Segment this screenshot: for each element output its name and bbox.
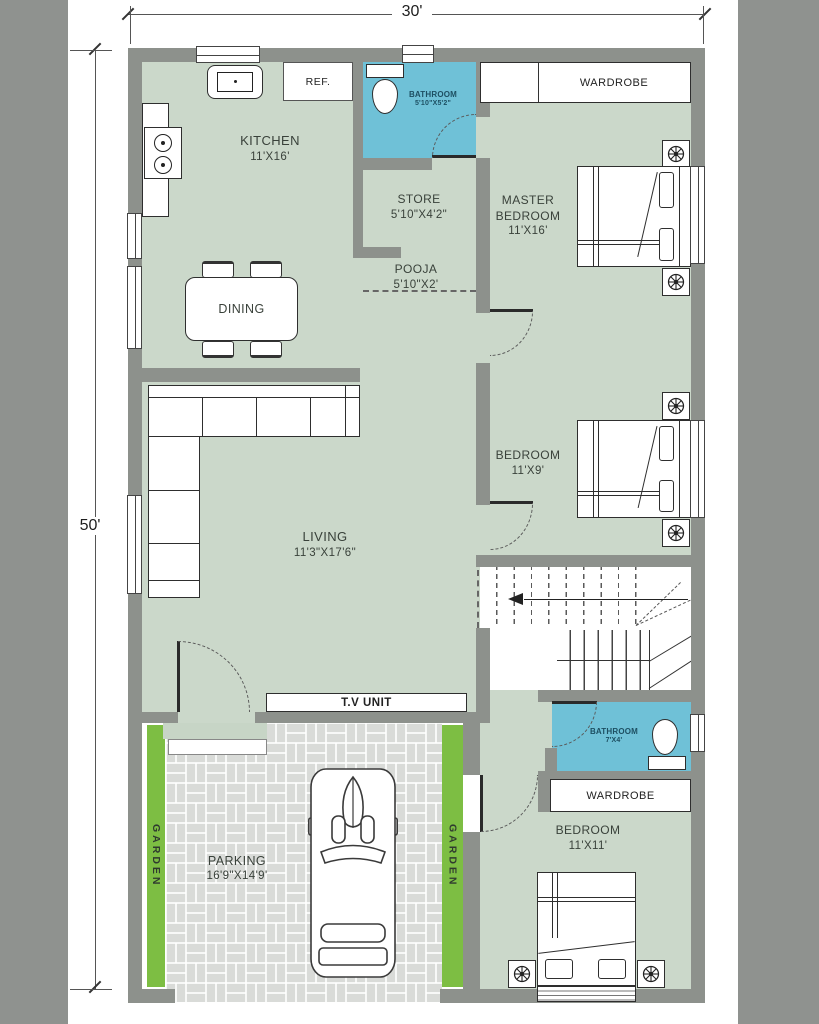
bed-bottom	[537, 872, 636, 986]
wardrobe-bottom-label: WARDROBE	[586, 790, 654, 802]
nightstand	[508, 960, 536, 988]
tv-unit-label: T.V UNIT	[341, 697, 392, 709]
wall	[463, 723, 480, 775]
bed-mid	[577, 420, 691, 518]
window	[690, 714, 705, 752]
ceiling-fan-icon	[666, 396, 686, 416]
room-label-bedroom-bottom: BEDROOM 11'X11'	[542, 823, 634, 854]
window	[127, 213, 142, 259]
entry-porch	[163, 723, 267, 739]
room-label-store: STORE 5'10"X4'2"	[360, 192, 478, 223]
wall	[476, 628, 490, 723]
chair-icon	[250, 341, 282, 358]
entry-step	[168, 739, 267, 755]
nightstand	[637, 960, 665, 988]
toilet-tank-icon	[648, 756, 686, 770]
window	[127, 495, 142, 594]
window	[690, 166, 705, 264]
wardrobe-top-label: WARDROBE	[538, 63, 690, 102]
ceiling-fan-icon	[641, 964, 661, 984]
ceiling-fan-icon	[666, 272, 686, 292]
extension-line	[703, 6, 704, 44]
room-label-kitchen: KITCHEN 11'X16'	[208, 133, 332, 165]
stove-icon	[144, 127, 182, 179]
wall	[476, 555, 705, 567]
chair-icon	[202, 341, 234, 358]
toilet-tank-icon	[366, 64, 404, 78]
room-label-parking: PARKING 16'9"X14'9'	[178, 853, 296, 884]
wall	[463, 832, 480, 989]
wall	[545, 748, 557, 773]
room-label-bathroom-top: BATHROOM 5'10"X5'2"	[389, 90, 477, 109]
car-icon	[308, 766, 398, 980]
room-label-master-bedroom: MASTER BEDROOM 11'X16'	[486, 193, 570, 239]
left-gray-band	[0, 0, 68, 1024]
room-label-bedroom-mid: BEDROOM 11'X9'	[486, 448, 570, 479]
wardrobe-top: WARDROBE	[480, 62, 691, 103]
room-label-bathroom-bottom: BATHROOM 7'X4'	[566, 727, 662, 746]
extension-line	[130, 6, 131, 44]
extension-line	[70, 50, 112, 51]
right-gray-band	[738, 0, 819, 1024]
wall	[255, 712, 480, 723]
wardrobe-bottom: WARDROBE	[550, 779, 691, 812]
garden-right-label: GARDEN	[442, 725, 463, 987]
stair-direction-arrow-icon	[508, 593, 523, 605]
wall	[128, 989, 175, 1003]
sofa	[148, 385, 360, 437]
wall	[142, 368, 360, 382]
ceiling-fan-icon	[512, 964, 532, 984]
nightstand	[662, 140, 690, 168]
stair-direction-line	[524, 599, 688, 600]
sofa-corner	[148, 437, 200, 598]
chair-icon	[202, 261, 234, 278]
ceiling-fan-icon	[666, 523, 686, 543]
garden-left-label: GARDEN	[147, 725, 165, 987]
width-dimension-label: 30'	[392, 3, 432, 21]
bed-master	[577, 166, 691, 267]
wall	[353, 247, 401, 258]
refrigerator-box: REF.	[283, 62, 353, 101]
stair-mid-line	[557, 660, 649, 661]
nightstand	[662, 268, 690, 296]
stair-upper-treads	[480, 567, 640, 628]
window	[402, 45, 434, 63]
living-passage-opening	[477, 570, 479, 628]
dining-table: DINING	[185, 277, 298, 341]
room-label-living: LIVING 11'3"X17'6"	[253, 529, 397, 561]
ceiling-fan-icon	[666, 144, 686, 164]
tv-unit: T.V UNIT	[266, 693, 467, 712]
chair-icon	[250, 261, 282, 278]
window	[127, 266, 142, 349]
nightstand	[662, 392, 690, 420]
wall	[142, 712, 178, 723]
wall	[353, 158, 432, 170]
extension-line	[70, 989, 112, 990]
window	[690, 420, 705, 518]
wall	[538, 780, 550, 812]
nightstand	[662, 519, 690, 547]
window	[196, 46, 260, 63]
bedroom-door-threshold	[463, 775, 480, 832]
ref-label: REF.	[306, 76, 331, 88]
dining-label: DINING	[218, 302, 264, 316]
room-label-pooja: POOJA 5'10"X2'	[358, 262, 474, 293]
wall	[476, 363, 490, 505]
bed-headboard	[537, 986, 636, 1002]
floor-plan-canvas: 30' 50'	[0, 0, 819, 1024]
height-dimension-label: 50'	[70, 517, 110, 535]
kitchen-sink-icon	[207, 65, 263, 99]
